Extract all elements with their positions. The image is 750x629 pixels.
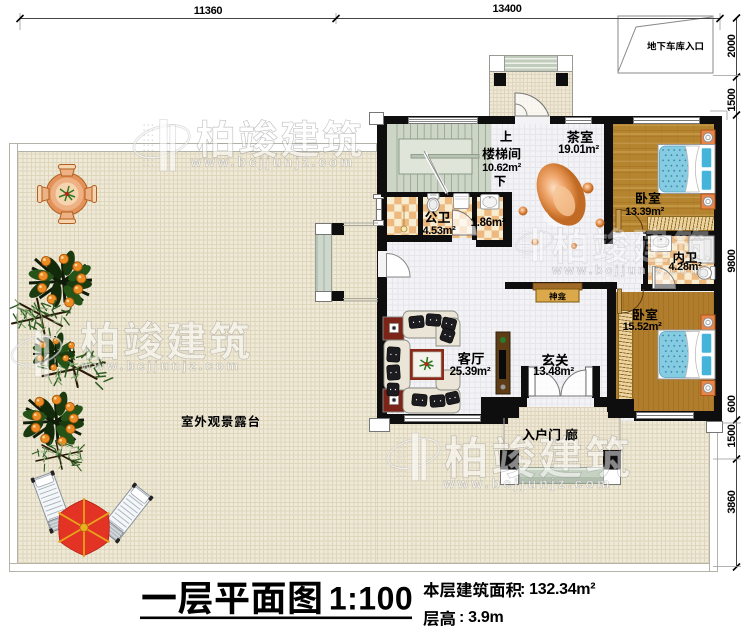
svg-text:www.bcjjunjz.com: www.bcjjunjz.com <box>80 358 241 373</box>
svg-text:www.bcjjunjz.com: www.bcjjunjz.com <box>443 475 613 491</box>
svg-text:www.bcjjunjz.com: www.bcjjunjz.com <box>190 155 356 170</box>
